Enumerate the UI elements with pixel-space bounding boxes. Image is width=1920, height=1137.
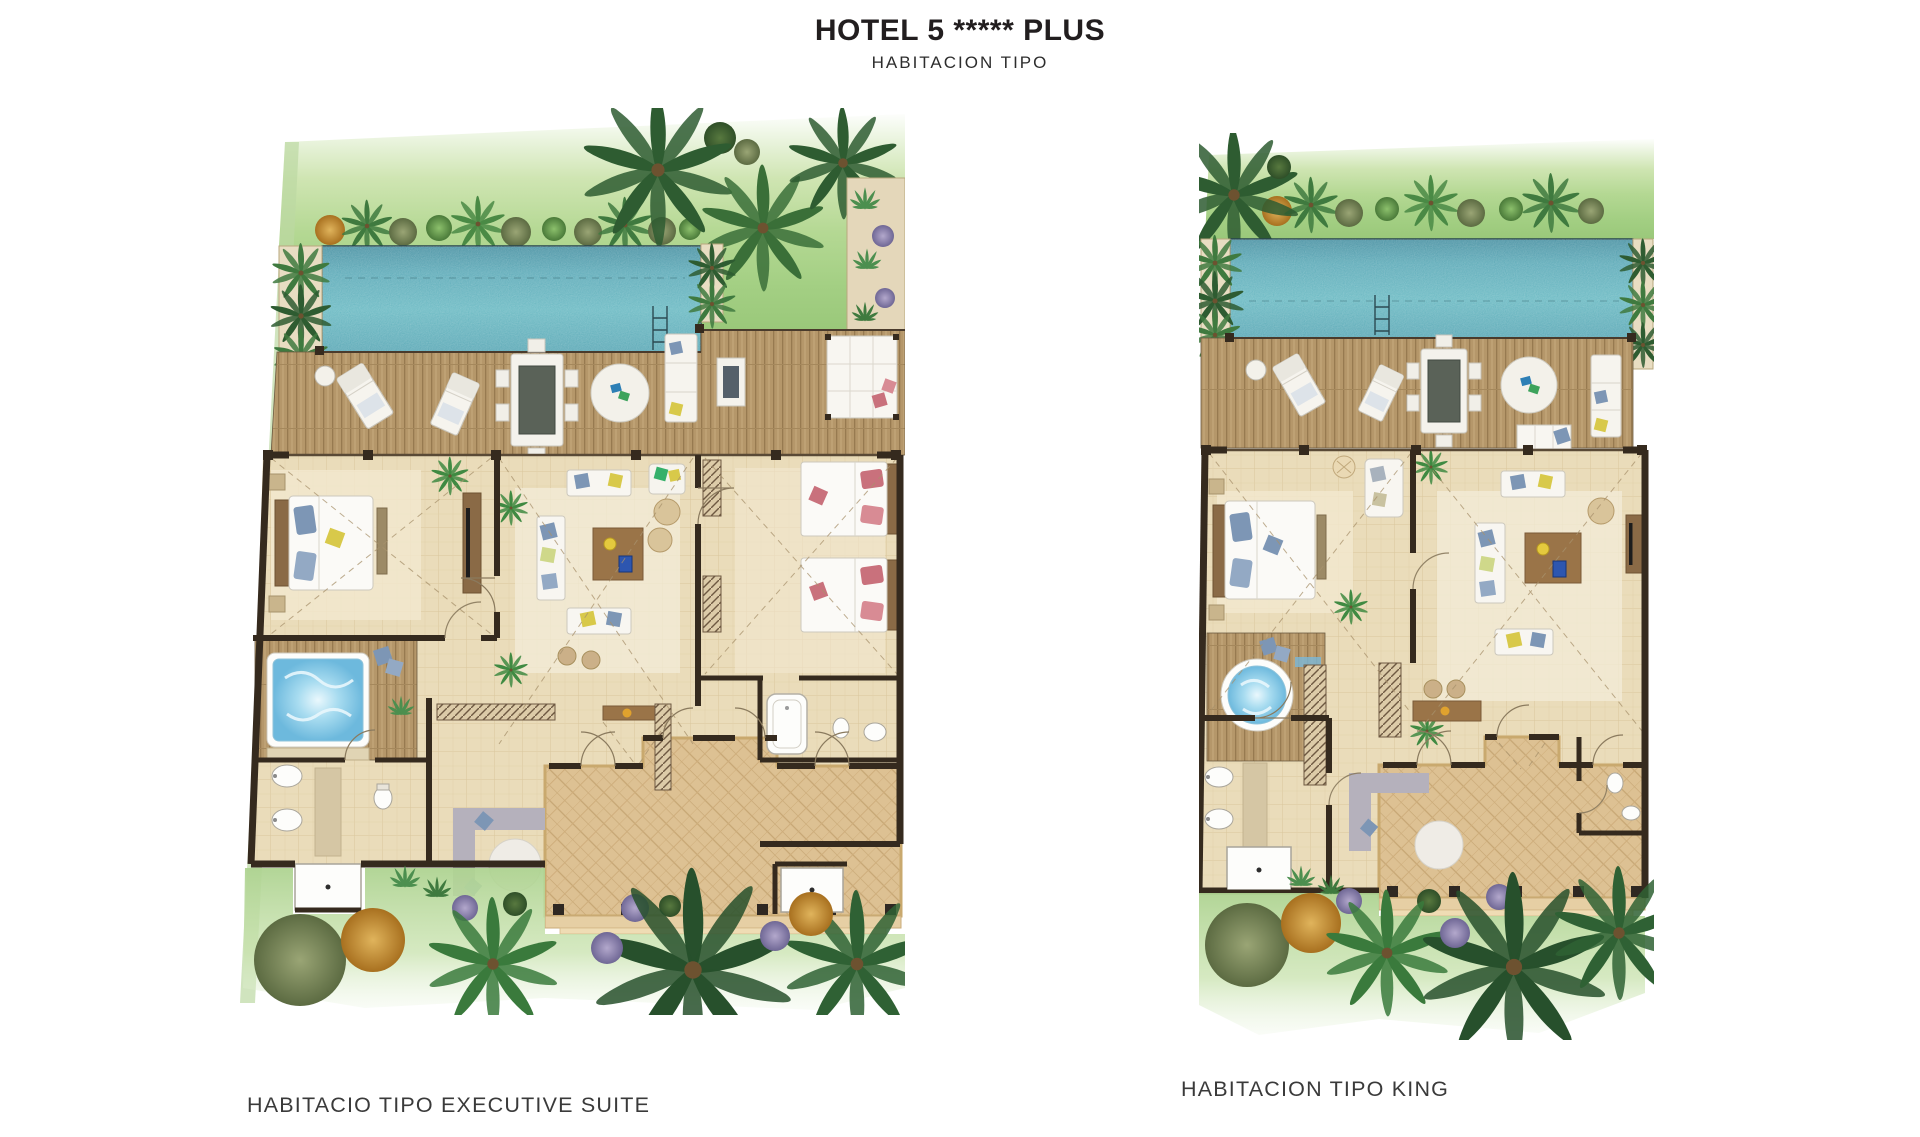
header: HOTEL 5 ***** PLUS HABITACION TIPO <box>0 14 1920 73</box>
pool <box>1230 239 1633 338</box>
shower <box>1227 847 1291 892</box>
wicker-chair <box>648 528 672 552</box>
outdoor-tv <box>717 358 745 406</box>
wardrobe <box>1379 663 1401 737</box>
planter <box>847 178 905 330</box>
pouf <box>1424 680 1442 698</box>
double-bed <box>801 462 897 536</box>
sofa <box>1495 629 1553 655</box>
caption-executive-suite: HABITACIO TIPO EXECUTIVE SUITE <box>247 1093 650 1118</box>
caption-king: HABITACION TIPO KING <box>1181 1077 1449 1102</box>
page-subtitle: HABITACION TIPO <box>0 53 1920 73</box>
sink <box>864 723 886 741</box>
round-table <box>1415 821 1463 869</box>
double-bed <box>801 558 897 632</box>
outdoor-sofa <box>1591 355 1621 437</box>
wicker-chair <box>1588 498 1614 524</box>
outdoor-sofa <box>665 334 697 422</box>
page-title: HOTEL 5 ***** PLUS <box>0 14 1920 48</box>
bathtub <box>767 694 807 754</box>
king-bed <box>275 496 387 590</box>
wc <box>374 784 392 809</box>
day-bed <box>825 334 899 420</box>
bar-table <box>591 364 649 422</box>
wardrobe <box>437 704 555 720</box>
side-table <box>315 366 335 386</box>
wicker-chair <box>654 499 680 525</box>
shower <box>295 864 361 910</box>
floor-plan-king <box>1199 133 1654 1040</box>
sofa <box>567 470 631 496</box>
sofa <box>1475 523 1505 603</box>
bath-counter <box>1243 763 1267 855</box>
wardrobe <box>655 704 671 790</box>
coffee-table <box>1525 533 1581 583</box>
sofa <box>537 516 565 600</box>
kitchen-counter <box>1413 701 1481 721</box>
nightstand <box>269 596 285 612</box>
bar-table <box>1501 357 1557 413</box>
nightstand <box>269 474 285 490</box>
sofa <box>567 608 631 634</box>
toilet <box>1607 773 1623 793</box>
armchair <box>649 464 685 494</box>
sofa <box>1501 471 1565 497</box>
pouf <box>558 647 576 665</box>
tv-console <box>1626 515 1642 573</box>
sink <box>1622 806 1640 820</box>
nightstand <box>1209 605 1224 620</box>
jacuzzi <box>255 638 417 760</box>
wardrobe <box>1304 665 1326 785</box>
wardrobe <box>703 576 721 632</box>
coffee-table <box>593 528 643 580</box>
pouf <box>1447 680 1465 698</box>
floor-plan-executive-suite <box>215 108 905 1015</box>
page: HOTEL 5 ***** PLUS HABITACION TIPO <box>0 0 1920 1137</box>
side-table <box>1246 360 1266 380</box>
nightstand <box>1209 479 1224 494</box>
pouf <box>582 651 600 669</box>
bath-counter <box>315 768 341 856</box>
